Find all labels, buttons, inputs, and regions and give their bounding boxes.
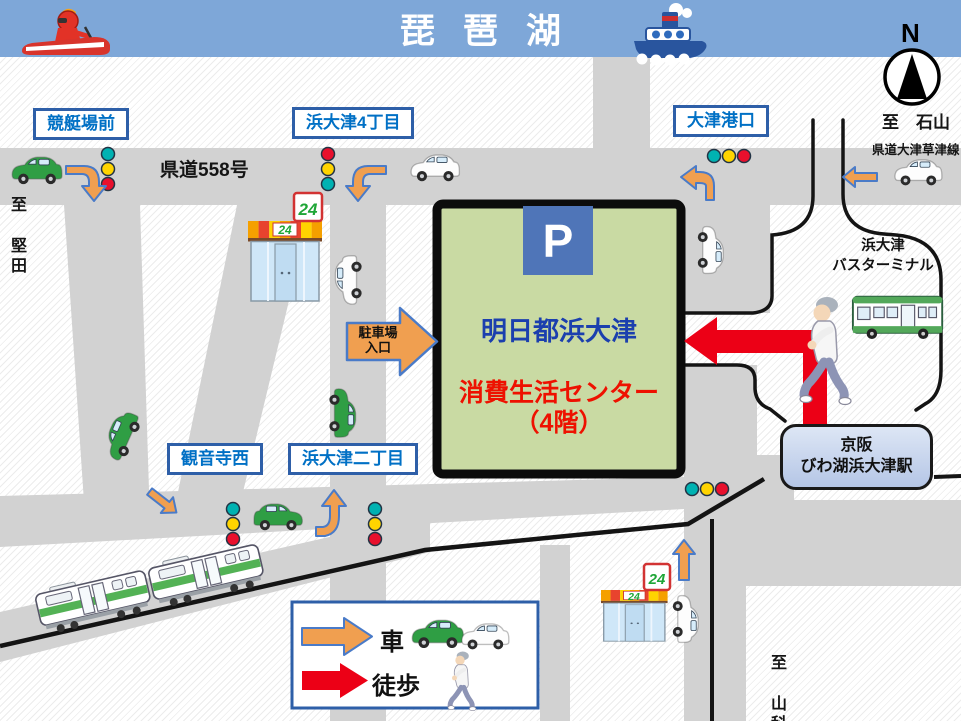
traffic-light-station — [686, 483, 729, 496]
compass-icon — [885, 50, 939, 104]
store-awning-sign: 24 — [277, 223, 292, 237]
road-east-junction — [684, 500, 961, 586]
store-pole-sign: 24 — [648, 571, 666, 588]
intersection-keiteijo-mae: 競艇場前 — [33, 108, 129, 140]
road-route558 — [0, 148, 961, 205]
traffic-light-keiteijo — [102, 148, 115, 191]
to-ishiyama-label: 至 石山 — [882, 108, 950, 133]
bus-terminal-label: 浜大津 バスターミナル — [798, 237, 961, 276]
traffic-light-4chome — [322, 148, 335, 191]
road-station-junction — [684, 455, 794, 505]
traffic-light-kannonji — [227, 503, 240, 546]
intersection-otsu-ko-guchi: 大津港口 — [673, 105, 769, 137]
railway-line-east — [934, 476, 961, 477]
otsu-kusatsu-line-label: 県道大津草津線 — [872, 139, 960, 158]
convenience-store-south: 24 24 — [601, 564, 670, 641]
road-to-station — [684, 365, 757, 460]
legend-car-label: 車 — [380, 622, 404, 657]
ferry-icon — [634, 3, 707, 66]
map-graphics: 24 24 24 24 — [0, 0, 961, 721]
road-south-stub — [540, 545, 570, 721]
traffic-light-port — [708, 150, 751, 163]
store-roof-sign: 24 — [298, 200, 318, 219]
keihan-station-box: 京阪 びわ湖浜大津駅 — [780, 424, 933, 490]
compass-n-label: N — [901, 18, 920, 49]
road-east-of-building — [684, 205, 770, 313]
store-awning-sign: 24 — [627, 591, 640, 603]
legend-walk-label: 徒歩 — [372, 666, 420, 701]
route558-label: 県道558号 — [160, 155, 249, 182]
building-department: 消費生活センター （4階） — [436, 379, 682, 438]
parking-mark: P — [523, 206, 593, 275]
building-name: 明日都浜大津 — [436, 311, 682, 348]
intersection-kannonji-nishi: 観音寺西 — [167, 443, 263, 475]
to-katata-label: 至 堅田 — [4, 196, 28, 277]
traffic-light-2chome — [369, 503, 382, 546]
boat-racer-icon — [22, 9, 110, 55]
intersection-hamaotsu-4chome: 浜大津4丁目 — [292, 107, 414, 139]
intersection-hamaotsu-2chome: 浜大津二丁目 — [288, 443, 418, 475]
parking-entrance-label: 駐車場 入口 — [350, 326, 406, 356]
road-to-port — [593, 57, 650, 149]
access-map: 琵琶湖 — [0, 0, 961, 721]
road-keiteijo-south — [64, 205, 150, 532]
bus-icon — [853, 297, 942, 339]
to-yamashina-label: 至 山科 — [764, 654, 788, 721]
road-to-yamashina — [684, 586, 746, 721]
